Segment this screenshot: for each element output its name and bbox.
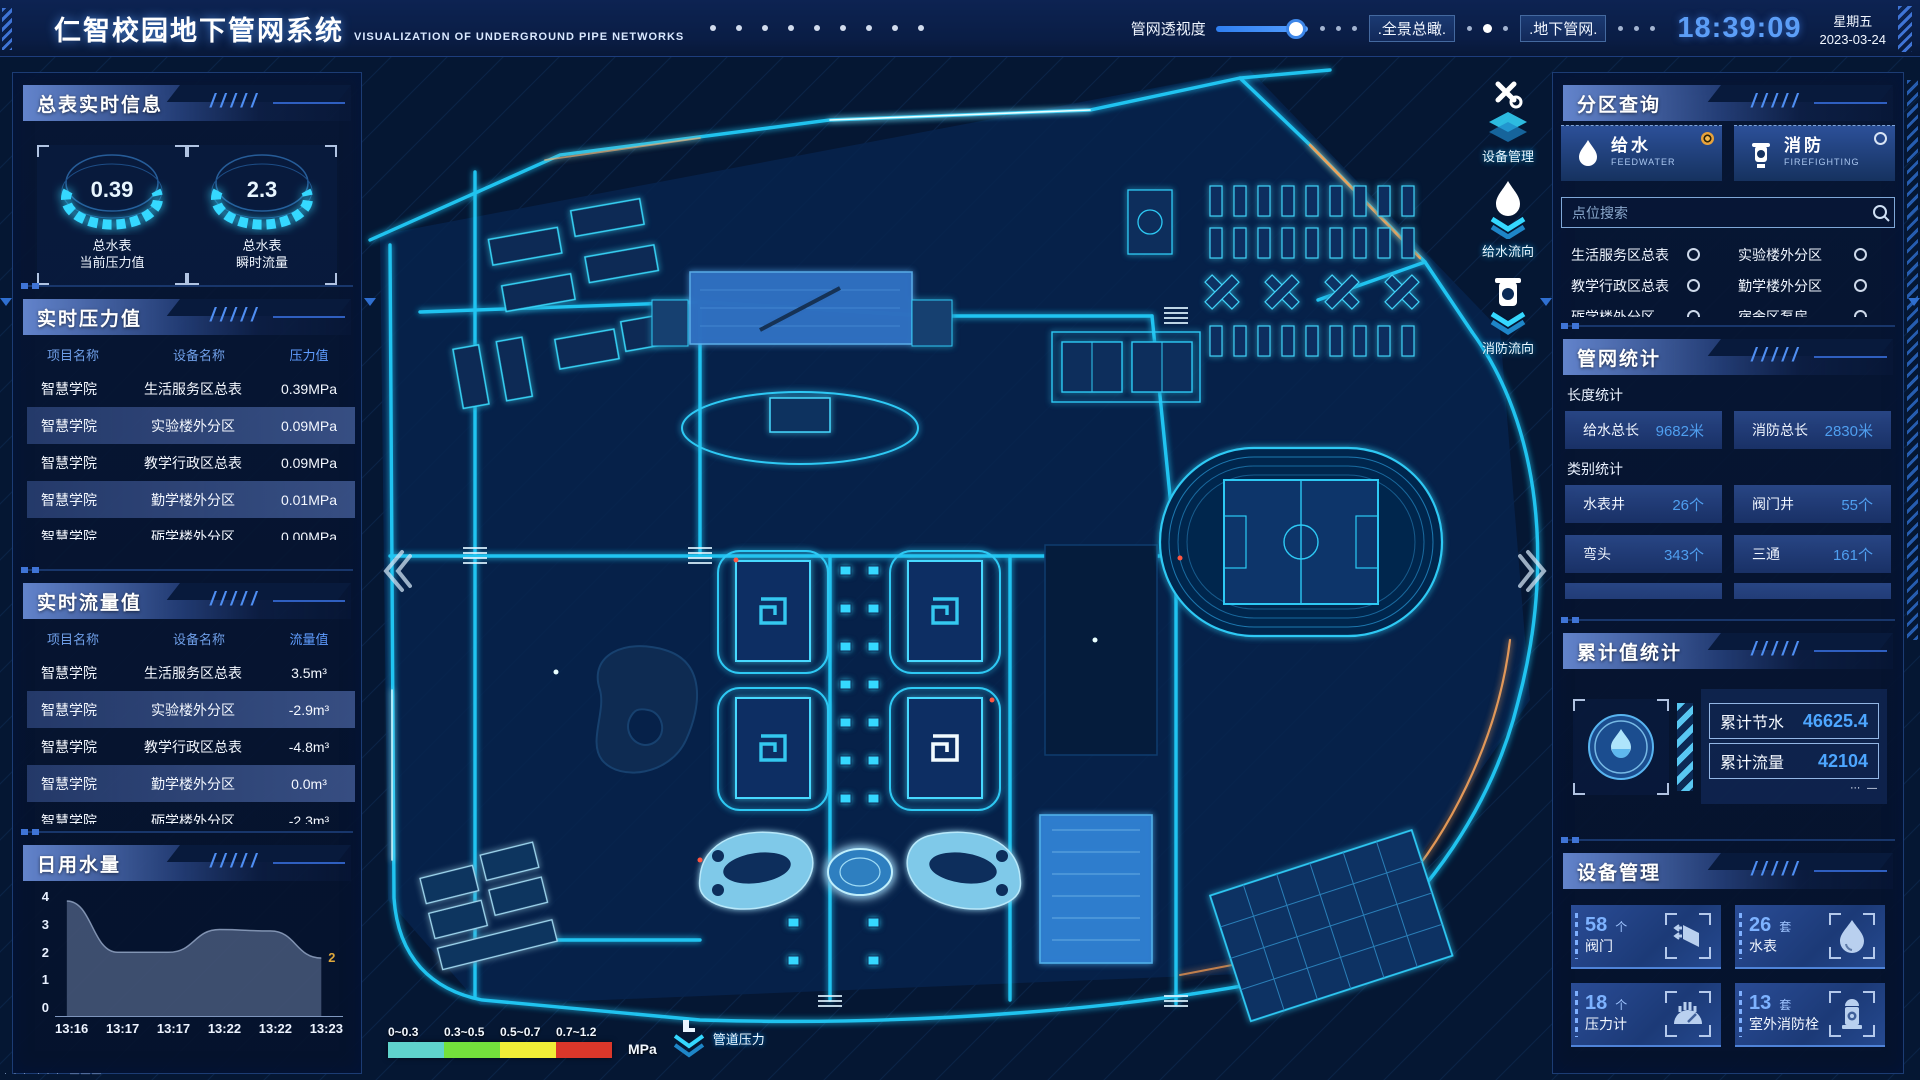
radio-icon[interactable] [1854, 248, 1867, 261]
gauge-label-line1: 总水表 [37, 237, 187, 254]
dots-decoration [1467, 24, 1508, 33]
line-decoration [273, 102, 345, 104]
weekday: 星期五 [1820, 11, 1887, 30]
pipe-pressure-toggle[interactable]: 管道压力 [671, 1018, 765, 1058]
search-box [1561, 197, 1895, 228]
length-stats-label: 长度统计 [1567, 385, 1889, 405]
pipe-pressure-label: 管道压力 [713, 1029, 765, 1048]
section-title: 日用水量 [37, 850, 121, 877]
table-header: 项目名称 设备名称 压力值 [27, 339, 355, 370]
slider-handle[interactable] [1286, 19, 1306, 39]
stat-chip: 三通161个 [1734, 535, 1891, 573]
legend-segment [444, 1042, 500, 1058]
stat-chip [1734, 583, 1891, 599]
master-meter-section: 总表实时信息 ///// 0.39 总水表 当前压力值 [23, 85, 351, 121]
hydrant-icon [1748, 139, 1774, 169]
water-drop-icon [1479, 179, 1537, 239]
section-title: 累计值统计 [1577, 638, 1682, 665]
legend-range-label: 0~0.3 [388, 1025, 444, 1039]
hydrant-icon [1479, 274, 1537, 336]
feedwater-flow-tool[interactable]: 给水流向 [1479, 179, 1537, 260]
dots-decoration [1320, 26, 1357, 31]
section-divider [1561, 839, 1895, 841]
tab-sublabel: FEEDWATER [1611, 154, 1676, 170]
section-divider [21, 285, 353, 287]
stat-chip: 消防总长2830米 [1734, 411, 1891, 449]
section-divider [21, 831, 353, 833]
chart-x-axis: 13:1613:17 13:1713:22 13:2213:23 [55, 1021, 343, 1036]
map-tool-label: 给水流向 [1482, 241, 1534, 260]
pan-left-chevron[interactable] [378, 548, 412, 594]
tab-sublabel: FIREFIGHTING [1784, 154, 1860, 170]
edge-marker [1540, 298, 1552, 306]
zone-option[interactable]: 生活服务区总表 [1561, 239, 1728, 270]
water-saving-icon-box [1573, 699, 1669, 795]
slash-decoration: ///// [210, 91, 261, 113]
tab-feedwater[interactable]: 给水 FEEDWATER [1561, 125, 1722, 181]
edge-marker [1908, 298, 1920, 306]
gauge-dial-icon: 2.3 [202, 149, 322, 235]
section-divider [21, 569, 353, 571]
radio-icon[interactable] [1687, 279, 1700, 292]
stat-chip: 水表井26个 [1565, 485, 1722, 523]
pipe-pressure-icon [671, 1018, 707, 1058]
edge-marker [364, 298, 376, 306]
device-card-pressure-gauges[interactable]: 18个 压力计 [1571, 983, 1721, 1047]
zone-option[interactable]: 砺学楼外分区 [1561, 301, 1728, 317]
table-row: 智慧学院教学行政区总表-4.8m³ [27, 728, 355, 765]
left-panel: 总表实时信息 ///// 0.39 总水表 当前压力值 [12, 72, 362, 1074]
legend-segment [500, 1042, 556, 1058]
table-row: 智慧学院勤学楼外分区0.01MPa [27, 481, 355, 518]
table-header: 项目名称 设备名称 流量值 [27, 623, 355, 654]
dashboard-screen: 设备管理 给水流向 消防流向 [0, 0, 1920, 1080]
cumulative-item: 累计节水 46625.4 [1709, 703, 1879, 739]
pressure-legend: 0~0.3 0.3~0.5 0.5~0.7 0.7~1.2 MPa [388, 1018, 765, 1058]
radio-icon[interactable] [1687, 310, 1700, 317]
table-row: 智慧学院实验楼外分区0.09MPa [27, 407, 355, 444]
water-drop-icon [1575, 139, 1601, 169]
section-divider [1561, 619, 1895, 621]
header-right-decoration [1898, 6, 1912, 52]
date: 2023-03-24 [1820, 32, 1887, 47]
tab-firefighting[interactable]: 消防 FIREFIGHTING [1734, 125, 1895, 181]
section-title: 实时压力值 [37, 304, 142, 331]
header-left-decoration [2, 8, 12, 50]
pipe-stats-section: 管网统计///// 长度统计 给水总长9682米 消防总长2830米 类别统计 … [1563, 339, 1893, 599]
dots-decoration: ⋯ — [1709, 783, 1879, 794]
radio-icon[interactable] [1854, 310, 1867, 317]
tab-label: 消防 [1784, 138, 1860, 154]
section-title: 管网统计 [1577, 344, 1661, 371]
top-header: 仁智校园地下管网系统 VISUALIZATION OF UNDERGROUND … [0, 0, 1920, 57]
table-row: 智慧学院生活服务区总表0.39MPa [27, 370, 355, 407]
transparency-slider-label: 管网透视度 [1131, 18, 1206, 39]
app-title: 仁智校园地下管网系统 [54, 9, 344, 48]
date-block: 星期五 2023-03-24 [1820, 11, 1887, 47]
table-row: 智慧学院勤学楼外分区0.0m³ [27, 765, 355, 802]
edge-marker [0, 298, 12, 306]
map-tool-label: 设备管理 [1482, 146, 1534, 165]
map-tool-stack: 设备管理 给水流向 消防流向 [1468, 78, 1548, 357]
search-icon[interactable] [1868, 203, 1894, 223]
table-row: 智慧学院生活服务区总表3.5m³ [27, 654, 355, 691]
table-row: 智慧学院教学行政区总表0.09MPa [27, 444, 355, 481]
device-card-water-meters[interactable]: 26套 水表 [1735, 905, 1885, 969]
pressure-table-section: 实时压力值///// 项目名称 设备名称 压力值 智慧学院生活服务区总表0.39… [23, 299, 351, 540]
pressure-gauge: 0.39 总水表 当前压力值 [37, 145, 187, 285]
legend-color-bar [388, 1042, 612, 1058]
flow-gauge: 2.3 总水表 瞬时流量 [187, 145, 337, 285]
clipped-stat-row [1563, 583, 1893, 599]
legend-segment [556, 1042, 612, 1058]
bottom-left-decoration: · · · · · · ——— [4, 1068, 103, 1078]
radio-icon[interactable] [1687, 248, 1700, 261]
gauge-label-line2: 瞬时流量 [187, 254, 337, 271]
daily-water-section: 日用水量///// 43 21 0 2 13:1613:17 13:1713 [23, 845, 351, 1061]
gauge-dial-icon: 0.39 [52, 149, 172, 235]
device-manage-tool[interactable]: 设备管理 [1479, 78, 1537, 165]
table-row: 智慧学院实验楼外分区-2.9m³ [27, 691, 355, 728]
daily-water-chart: 43 21 0 2 13:1613:17 13:1713:22 13:2213:… [29, 889, 345, 1057]
table-row: 智慧学院砺学楼外分区-2.3m³ [27, 802, 355, 824]
chart-y-axis: 43 21 0 [31, 889, 49, 1015]
fire-flow-tool[interactable]: 消防流向 [1479, 274, 1537, 357]
device-card-hydrants[interactable]: 13套 室外消防栓 [1735, 983, 1885, 1047]
zone-options-list: 生活服务区总表 实验楼外分区 教学行政区总表 勤学楼外分区 砺学楼外分区 宿舍区… [1561, 239, 1895, 317]
legend-segment [388, 1042, 444, 1058]
search-input[interactable] [1562, 205, 1868, 221]
table-row: 智慧学院砺学楼外分区0.00MPa [27, 518, 355, 540]
right-edge-decoration [1907, 80, 1918, 640]
svg-text:0.39: 0.39 [91, 177, 134, 202]
section-title: 总表实时信息 [37, 90, 163, 117]
stat-chip [1565, 583, 1722, 599]
legend-range-label: 0.5~0.7 [500, 1025, 556, 1039]
water-drop-icon [1585, 711, 1657, 783]
category-stats-label: 类别统计 [1567, 459, 1889, 479]
legend-range-label: 0.3~0.5 [444, 1025, 500, 1039]
map-tool-label: 消防流向 [1482, 338, 1534, 357]
radio-icon[interactable] [1854, 279, 1867, 292]
zone-option[interactable]: 宿舍区泵房 [1728, 301, 1895, 317]
tab-radio[interactable] [1874, 132, 1887, 145]
section-title: 分区查询 [1577, 90, 1661, 117]
overview-button[interactable]: .全景总瞰. [1369, 15, 1455, 42]
device-card-valves[interactable]: 58个 阀门 [1571, 905, 1721, 969]
transparency-slider[interactable] [1216, 26, 1308, 32]
header-dots-decoration [710, 25, 924, 31]
underground-pipes-button[interactable]: .地下管网. [1520, 15, 1606, 42]
zone-query-section: 分区查询///// [1563, 85, 1893, 121]
gauge-label-line1: 总水表 [187, 237, 337, 254]
area-chart-svg: 2 [55, 893, 343, 1017]
app-subtitle: VISUALIZATION OF UNDERGROUND PIPE NETWOR… [354, 31, 684, 43]
zone-option[interactable]: 实验楼外分区 [1728, 239, 1895, 270]
legend-unit: MPa [628, 1041, 657, 1057]
legend-range-label: 0.7~1.2 [556, 1025, 612, 1039]
gauge-label-line2: 当前压力值 [37, 254, 187, 271]
section-header: 总表实时信息 ///// [23, 85, 351, 121]
wrench-icon [1479, 78, 1537, 144]
zone-option[interactable]: 勤学楼外分区 [1728, 270, 1895, 301]
tab-radio-selected[interactable] [1701, 132, 1714, 145]
section-divider [1561, 325, 1895, 327]
cumulative-section: 累计值统计///// 累计节水 46625.4 [1563, 633, 1893, 823]
svg-text:2: 2 [328, 950, 335, 965]
dots-decoration [1618, 26, 1655, 31]
section-title: 设备管理 [1577, 858, 1661, 885]
zone-option[interactable]: 教学行政区总表 [1561, 270, 1728, 301]
stat-chip: 给水总长9682米 [1565, 411, 1722, 449]
cumulative-item: 累计流量 42104 [1709, 743, 1879, 779]
section-title: 实时流量值 [37, 588, 142, 615]
stat-chip: 阀门井55个 [1734, 485, 1891, 523]
pan-right-chevron[interactable] [1518, 548, 1552, 594]
flow-table-section: 实时流量值///// 项目名称 设备名称 流量值 智慧学院生活服务区总表3.5m… [23, 583, 351, 824]
stripe-decoration [1677, 703, 1693, 791]
device-management-section: 设备管理///// 58个 阀门 [1563, 853, 1893, 1063]
stat-chip: 弯头343个 [1565, 535, 1722, 573]
svg-text:2.3: 2.3 [247, 177, 278, 202]
tab-label: 给水 [1611, 138, 1676, 154]
right-panel: 分区查询///// 给水 FEEDWATER [1552, 72, 1904, 1074]
clock: 18:39:09 [1677, 12, 1801, 45]
